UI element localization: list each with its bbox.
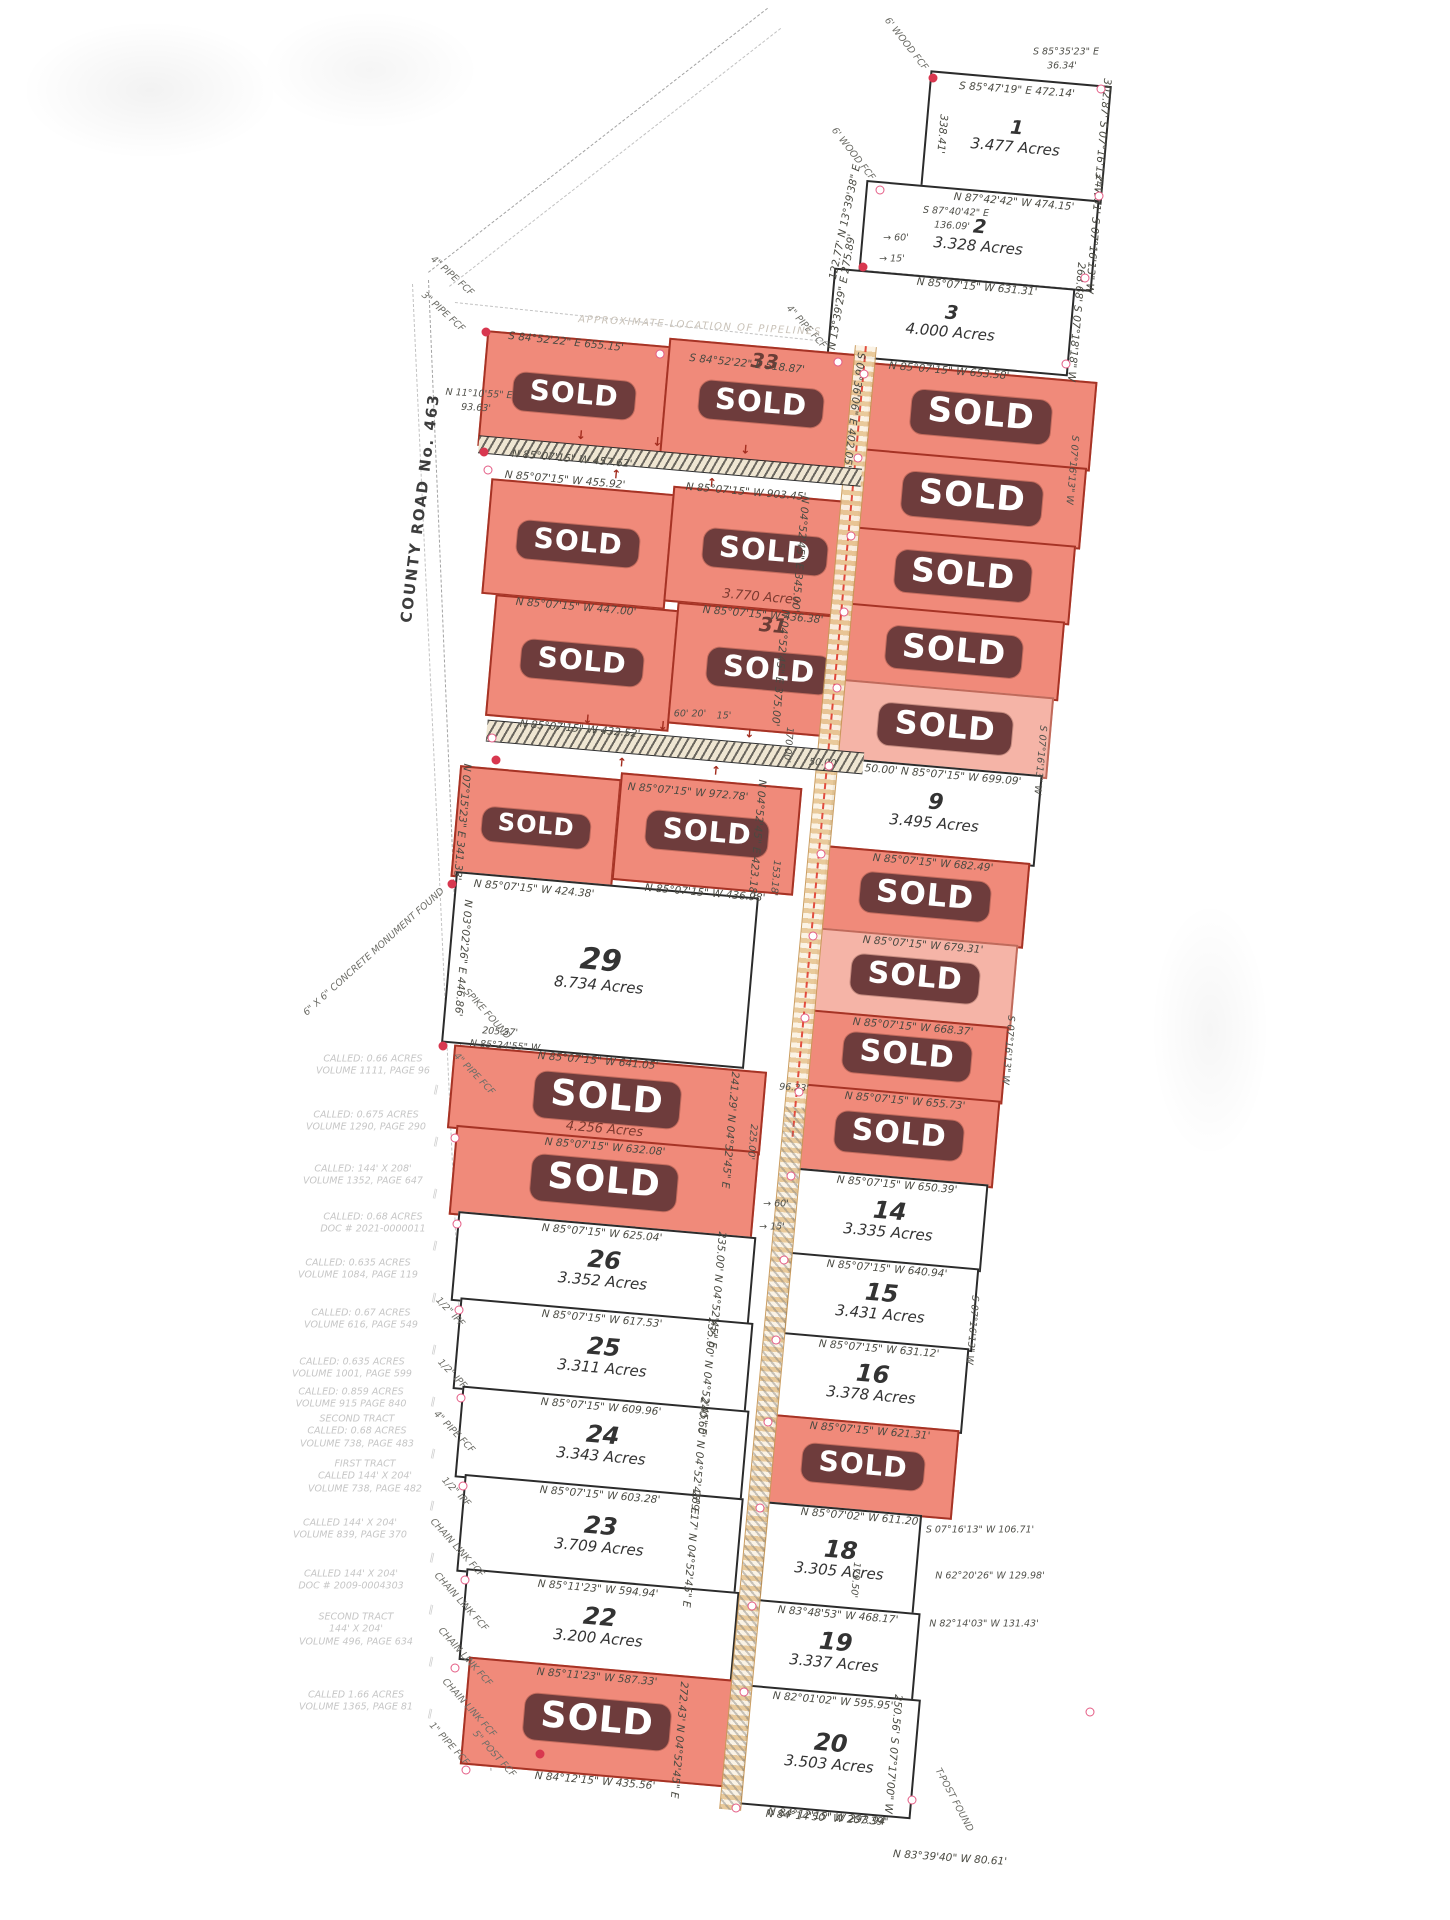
- dimension-label: → 15': [879, 254, 905, 265]
- vertex-marker-icon: [484, 466, 493, 475]
- dimension-label: N 82°14'03" W 131.43': [929, 1619, 1038, 1630]
- margin-deed-note: CALLED: 0.635 ACRES VOLUME 1001, PAGE 59…: [292, 1357, 412, 1382]
- sold-banner: SOLD: [884, 625, 1023, 679]
- dimension-label: S 85°35'23" E: [1033, 47, 1099, 58]
- lot-acres: 3.495 Acres: [889, 811, 980, 835]
- vertex-marker-icon: [834, 358, 843, 367]
- vertex-marker-icon: [908, 1796, 917, 1805]
- sold-banner: SOLD: [533, 1071, 682, 1129]
- lot-number: 2: [972, 217, 987, 237]
- lot-number: 3: [944, 303, 959, 323]
- lot-acres: 3.311 Acres: [557, 1356, 648, 1380]
- sold-banner: SOLD: [893, 549, 1032, 603]
- county-road-label: COUNTY ROAD No. 463: [397, 392, 443, 624]
- sold-banner: SOLD: [901, 471, 1044, 527]
- lot-acres: 3.352 Acres: [557, 1269, 648, 1293]
- vertex-marker-icon: [1095, 192, 1104, 201]
- vertex-marker-icon: [1062, 360, 1071, 369]
- lot-number: 29: [579, 945, 623, 979]
- vertex-marker-icon: [455, 1306, 464, 1315]
- plat-map: COUNTY ROAD No. 463 13.477 AcresN 87°42'…: [0, 0, 1450, 1920]
- road-tick: ∥: [428, 1500, 435, 1512]
- lot-acres: 4.000 Acres: [905, 320, 996, 344]
- margin-deed-note: CALLED 144' X 204' DOC # 2009-0004303: [298, 1569, 403, 1594]
- dimension-arrow-icon: ↑: [616, 755, 627, 770]
- road-tick: ∥: [431, 1240, 438, 1252]
- sold-banner: SOLD: [877, 702, 1013, 755]
- sold-banner: SOLD: [801, 1443, 925, 1491]
- dimension-label: N 11°10'55" E: [445, 387, 513, 401]
- lot-number: 25: [586, 1334, 621, 1361]
- lot-acres: 8.734 Acres: [553, 973, 644, 997]
- vertex-marker-icon: [825, 762, 834, 771]
- dimension-label: 93.63': [461, 402, 491, 415]
- sold-banner: SOLD: [480, 807, 591, 850]
- fence-label: T-POST FOUND: [933, 1766, 976, 1833]
- vertex-marker-icon: [448, 880, 457, 889]
- lot-acres: 3.709 Acres: [554, 1535, 645, 1559]
- lot-number: 1: [1009, 119, 1024, 139]
- lot-acres: 3.200 Acres: [553, 1626, 644, 1650]
- vertex-marker-icon: [764, 1418, 773, 1427]
- lot-acres: 3.477 Acres: [970, 135, 1061, 159]
- sold-banner: SOLD: [858, 871, 991, 923]
- sold-banner: SOLD: [706, 646, 833, 695]
- sold-banner: SOLD: [523, 1693, 672, 1751]
- lot-number: 20: [813, 1730, 848, 1757]
- fence-label: 4" PIPE FCF: [428, 254, 476, 298]
- dimension-arrow-icon: ↓: [575, 428, 586, 443]
- fence-label: 6" X 6" CONCRETE MONUMENT FOUND: [301, 886, 446, 1019]
- lot-number: 26: [587, 1247, 622, 1274]
- margin-deed-note: CALLED: 0.635 ACRES VOLUME 1084, PAGE 11…: [298, 1258, 418, 1283]
- margin-deed-note: SECOND TRACT 144' X 204' VOLUME 496, PAG…: [299, 1611, 413, 1648]
- margin-deed-note: CALLED: 0.68 ACRES DOC # 2021-0000011: [320, 1212, 425, 1237]
- sold-banner: SOLD: [842, 1032, 972, 1082]
- road-tick: ∥: [430, 1344, 437, 1356]
- vertex-marker-icon: [840, 608, 849, 617]
- sold-banner: SOLD: [512, 372, 636, 420]
- dimension-label: S 07°16'13" W 106.71': [926, 1525, 1034, 1536]
- dimension-arrow-icon: ↓: [657, 718, 668, 733]
- lot-acres: 3.343 Acres: [556, 1444, 647, 1468]
- vertex-marker-icon: [780, 1256, 789, 1265]
- road-tick: ∥: [428, 1552, 435, 1564]
- margin-deed-note: FIRST TRACT CALLED 144' X 204' VOLUME 73…: [308, 1458, 422, 1495]
- road-tick: ∥: [431, 1188, 438, 1200]
- lot-acres: 3.503 Acres: [784, 1752, 875, 1776]
- road-tick: ∥: [432, 1084, 439, 1096]
- lot-number: 24: [585, 1422, 620, 1449]
- vertex-marker-icon: [1097, 85, 1106, 94]
- vertex-marker-icon: [756, 1504, 765, 1513]
- vertex-marker-icon: [457, 1394, 466, 1403]
- vertex-marker-icon: [656, 350, 665, 359]
- margin-deed-note: CALLED 1.66 ACRES VOLUME 1365, PAGE 81: [299, 1690, 413, 1715]
- sold-banner: SOLD: [516, 520, 640, 568]
- road-tick: ∥: [432, 1136, 439, 1148]
- vertex-marker-icon: [536, 1750, 545, 1759]
- vertex-marker-icon: [772, 1336, 781, 1345]
- vertex-marker-icon: [787, 1172, 796, 1181]
- dimension-label: 36.34': [1047, 61, 1077, 72]
- road-tick: ∥: [427, 1604, 434, 1616]
- lot-acres: 3.431 Acres: [835, 1302, 926, 1326]
- road-tick: ∥: [429, 1448, 436, 1460]
- dimension-label: 136.09': [934, 220, 970, 233]
- lot-number: 9: [927, 792, 944, 815]
- lot-acres: 3.335 Acres: [843, 1220, 934, 1244]
- dimension-label: N 62°20'26" W 129.98': [935, 1571, 1044, 1582]
- vertex-marker-icon: [459, 1482, 468, 1491]
- margin-deed-note: CALLED: 144' X 208' VOLUME 1352, PAGE 64…: [303, 1164, 423, 1189]
- margin-deed-note: CALLED 144' X 204' VOLUME 839, PAGE 370: [293, 1518, 407, 1543]
- plat-map-page: COUNTY ROAD No. 463 13.477 AcresN 87°42'…: [0, 0, 1450, 1920]
- dimension-label: 15': [717, 711, 732, 722]
- vertex-marker-icon: [451, 1664, 460, 1673]
- vertex-marker-icon: [860, 370, 869, 379]
- vertex-marker-icon: [439, 1042, 448, 1051]
- vertex-marker-icon: [801, 1014, 810, 1023]
- sold-banner: SOLD: [834, 1111, 964, 1161]
- vertex-marker-icon: [809, 932, 818, 941]
- road-dashed-line: [428, 8, 768, 273]
- road-tick: ∥: [429, 1396, 436, 1408]
- dimension-arrow-icon: ↓: [740, 442, 751, 457]
- vertex-marker-icon: [1086, 1708, 1095, 1717]
- vertex-marker-icon: [480, 448, 489, 457]
- road-dashed-line: [449, 28, 781, 287]
- sold-banner: SOLD: [702, 527, 829, 576]
- vertex-marker-icon: [859, 263, 868, 272]
- dimension-arrow-icon: ↓: [652, 434, 663, 449]
- vertex-marker-icon: [817, 850, 826, 859]
- lot-acres: 3.328 Acres: [933, 234, 1024, 258]
- vertex-marker-icon: [461, 1576, 470, 1585]
- vertex-marker-icon: [833, 684, 842, 693]
- lot-r3l: SOLD: [485, 594, 679, 732]
- vertex-marker-icon: [1081, 274, 1090, 283]
- lot-number: 16: [855, 1361, 890, 1388]
- vertex-marker-icon: [453, 1220, 462, 1229]
- lot-r2l: SOLD: [481, 478, 674, 610]
- dimension-arrow-icon: ↑: [710, 763, 721, 778]
- road-tick: ∥: [426, 1708, 433, 1720]
- pipeline-note: APPROXIMATE LOCATION OF PIPELINES: [578, 314, 822, 338]
- dimension-label: → 60': [883, 233, 909, 244]
- lot-number: 14: [872, 1198, 907, 1225]
- road-tick: ∥: [427, 1656, 434, 1668]
- vertex-marker-icon: [462, 1766, 471, 1775]
- lot-number: 15: [864, 1280, 899, 1307]
- sold-banner: SOLD: [520, 639, 644, 687]
- sold-banner: SOLD: [698, 379, 825, 428]
- margin-deed-note: CALLED: 0.67 ACRES VOLUME 616, PAGE 549: [304, 1308, 418, 1333]
- sold-banner: SOLD: [850, 954, 980, 1004]
- vertex-marker-icon: [795, 1088, 804, 1097]
- sold-banner: SOLD: [530, 1154, 679, 1212]
- vertex-marker-icon: [740, 1688, 749, 1697]
- vertex-marker-icon: [929, 74, 938, 83]
- vertex-marker-icon: [492, 756, 501, 765]
- lot-number: 19: [818, 1629, 853, 1656]
- margin-deed-note: SECOND TRACT CALLED: 0.68 ACRES VOLUME 7…: [300, 1413, 414, 1450]
- vertex-marker-icon: [482, 328, 491, 337]
- vertex-marker-icon: [847, 532, 856, 541]
- lot-acres: 3.337 Acres: [789, 1651, 880, 1675]
- vertex-marker-icon: [876, 186, 885, 195]
- dimension-arrow-icon: ↓: [744, 726, 755, 741]
- margin-deed-note: CALLED: 0.859 ACRES VOLUME 915 PAGE 840: [296, 1387, 407, 1412]
- dimension-label: → 60': [763, 1199, 789, 1210]
- lot-number: 18: [823, 1537, 858, 1564]
- vertex-marker-icon: [488, 734, 497, 743]
- dimension-label: → 15': [759, 1222, 785, 1233]
- lot-acres: 3.378 Acres: [826, 1383, 917, 1407]
- vertex-marker-icon: [451, 1134, 460, 1143]
- bearing-label: N 83°39'40" W 80.61': [893, 1848, 1008, 1868]
- margin-deed-note: CALLED: 0.66 ACRES VOLUME 1111, PAGE 96: [316, 1054, 430, 1079]
- fence-label: 6' WOOD FCF: [882, 15, 930, 72]
- vertex-marker-icon: [732, 1804, 741, 1813]
- vertex-marker-icon: [748, 1602, 757, 1611]
- lot-number: 22: [582, 1604, 617, 1631]
- fence-label: 3" PIPE FCF: [419, 290, 467, 334]
- margin-deed-note: CALLED: 0.675 ACRES VOLUME 1290, PAGE 29…: [306, 1110, 426, 1135]
- dimension-label: 60' 20': [674, 709, 706, 720]
- sold-banner: SOLD: [910, 389, 1053, 445]
- lot-acres: 3.305 Acres: [794, 1559, 885, 1583]
- vertex-marker-icon: [854, 454, 863, 463]
- lot-number: 23: [583, 1513, 618, 1540]
